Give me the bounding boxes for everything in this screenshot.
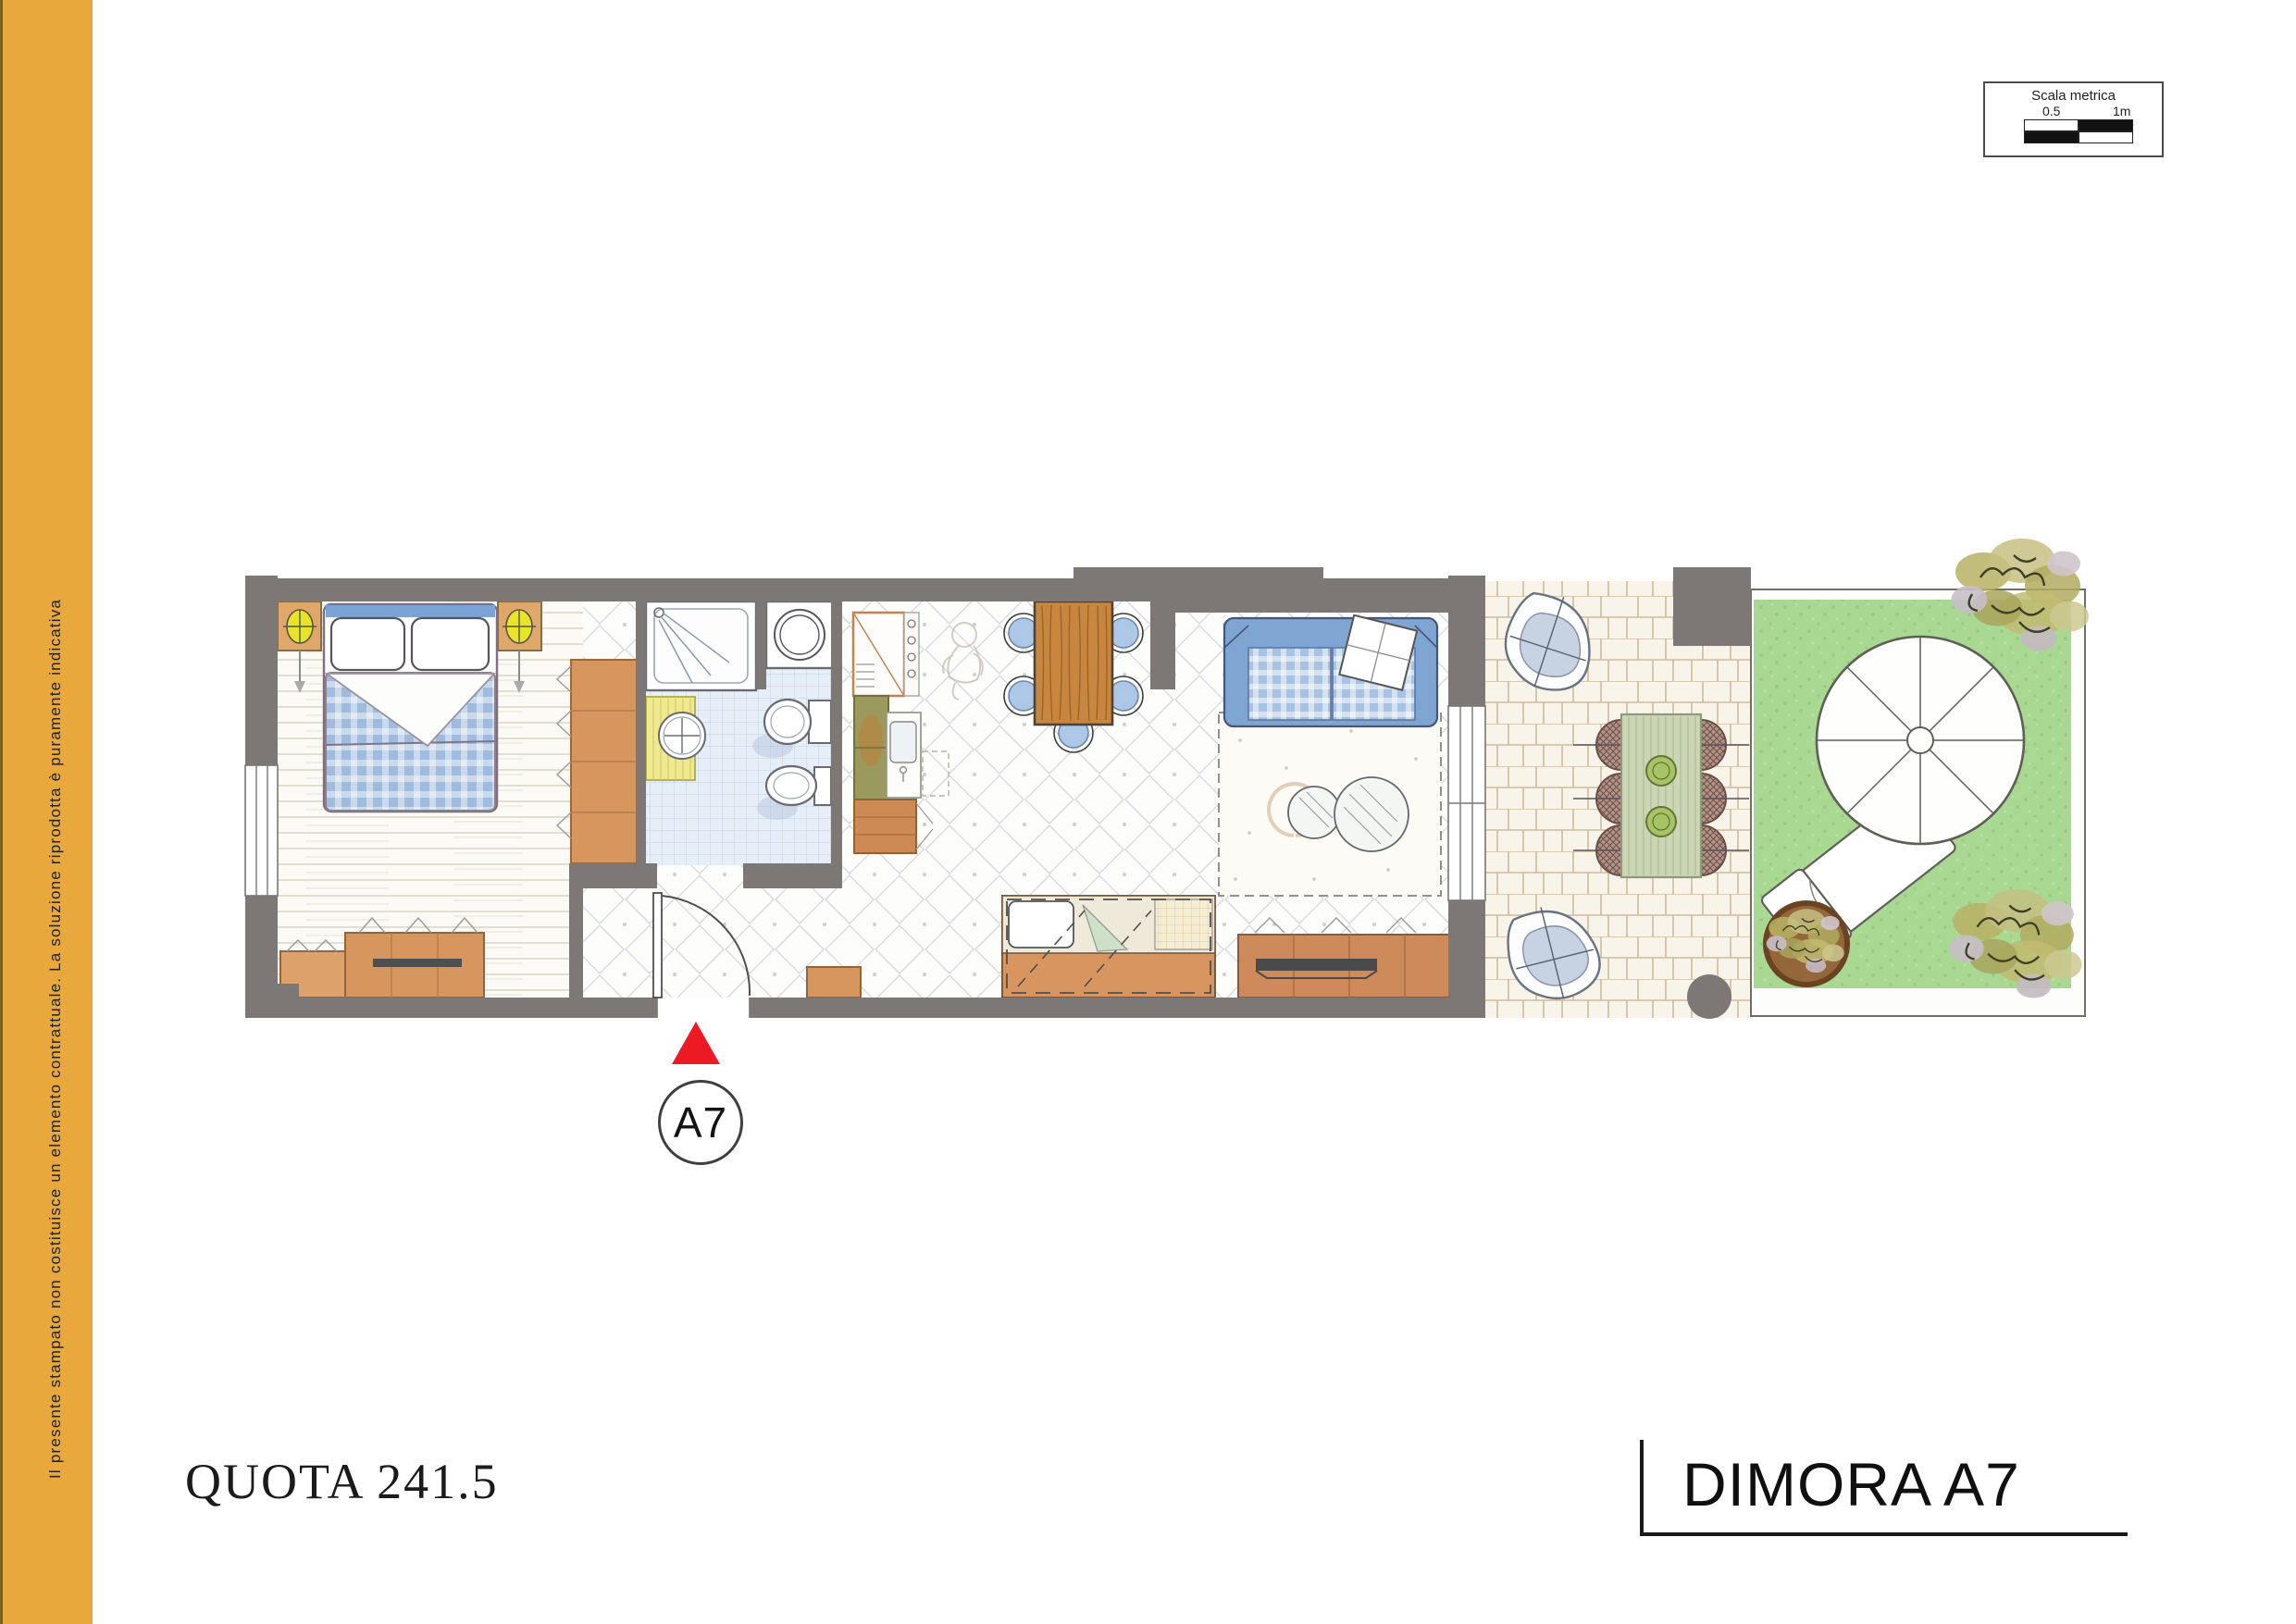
scale-segment [2079, 119, 2133, 131]
washing-machine [766, 601, 833, 668]
hall-cabinet [807, 967, 861, 998]
scale-segment [2079, 131, 2133, 143]
unit-marker: A7 [658, 1080, 743, 1165]
entrance-arrow-icon [672, 1022, 720, 1064]
disclaimer-text: Il presente stampato non costituisce un … [46, 599, 65, 1479]
title-rule-horizontal [1640, 1532, 2128, 1536]
window [1448, 706, 1485, 900]
scale-title: Scala metrica [1985, 88, 2162, 104]
title-rule-vertical [1640, 1440, 1644, 1536]
bidet [766, 766, 831, 805]
sofa [1224, 615, 1437, 726]
kitchen-sink [887, 713, 921, 798]
shower [646, 601, 756, 690]
outdoor-table [1621, 714, 1701, 877]
sideboard-bench [1002, 896, 1215, 998]
scale-segment [2024, 119, 2079, 131]
toilet [764, 700, 831, 744]
double-bed [324, 604, 497, 812]
page: Il presente stampato non costituisce un … [0, 0, 2296, 1624]
window [245, 765, 278, 896]
fridge-unit [853, 613, 904, 696]
kitchen-cabinet-green [854, 696, 888, 800]
pillow [331, 618, 404, 670]
tv [1256, 959, 1377, 971]
scale-box: Scala metrica 0.5 1m [1983, 81, 2164, 157]
scale-bar [2024, 119, 2133, 143]
planter [1766, 903, 1847, 985]
scale-labels: 0.5 1m [1985, 104, 2162, 119]
scale-label-one-meter: 1m [2113, 104, 2130, 118]
quota-label: QUOTA 241.5 [185, 1453, 499, 1510]
cooktop [904, 613, 919, 696]
pillow [412, 618, 489, 670]
dining-table [1035, 601, 1112, 725]
coffee-table [1334, 777, 1409, 851]
umbrella-gazebo [1817, 637, 2024, 844]
page-title: DIMORA A7 [1682, 1449, 2020, 1519]
scale-segment [2024, 131, 2079, 143]
patio-pillar [1673, 567, 1751, 646]
scale-label-half-meter: 0.5 [2042, 104, 2060, 118]
floor-plan [0, 0, 2296, 1624]
patio-column-base [1687, 974, 1731, 1019]
